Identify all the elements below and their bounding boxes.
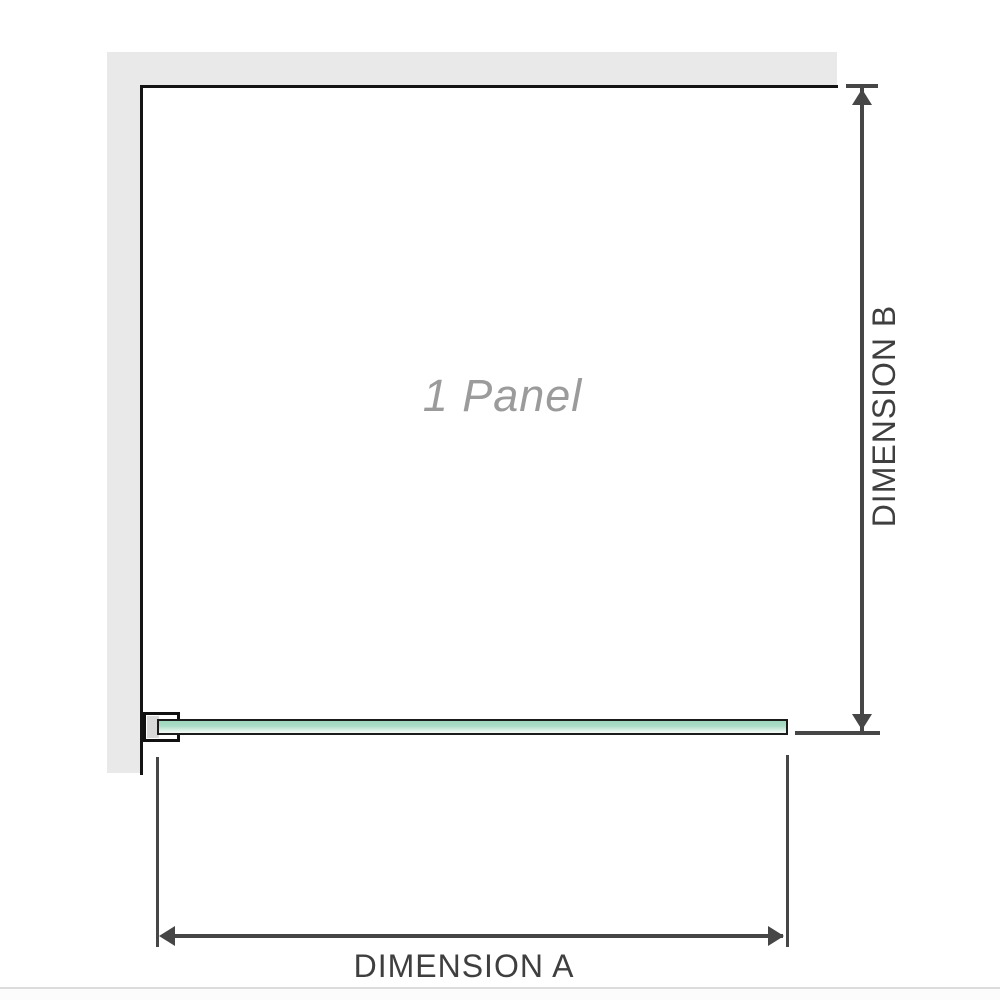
arrow-left-icon (159, 926, 175, 946)
glass-panel (157, 719, 788, 735)
wall-inner-edge-left (140, 85, 143, 775)
dimension-a-extension-left (156, 757, 159, 947)
dimension-b-tick-bottom (795, 731, 880, 735)
arrow-down-icon (852, 714, 872, 730)
dimension-a-label: DIMENSION A (314, 946, 614, 986)
wall-top-segment (107, 52, 837, 86)
arrow-up-icon (852, 89, 872, 105)
wall-inner-edge-top (140, 85, 838, 88)
dimension-b-label: DIMENSION B (864, 286, 904, 546)
footer-strip (0, 989, 1000, 1000)
panel-count-label: 1 Panel (380, 368, 625, 424)
wall-left-segment (107, 52, 141, 773)
dimension-a-extension-right (786, 755, 789, 947)
dimension-a-line (162, 934, 783, 938)
arrow-right-icon (768, 926, 784, 946)
panel-dimension-diagram: 1 Panel DIMENSION B DIMENSION A (0, 0, 1000, 1000)
